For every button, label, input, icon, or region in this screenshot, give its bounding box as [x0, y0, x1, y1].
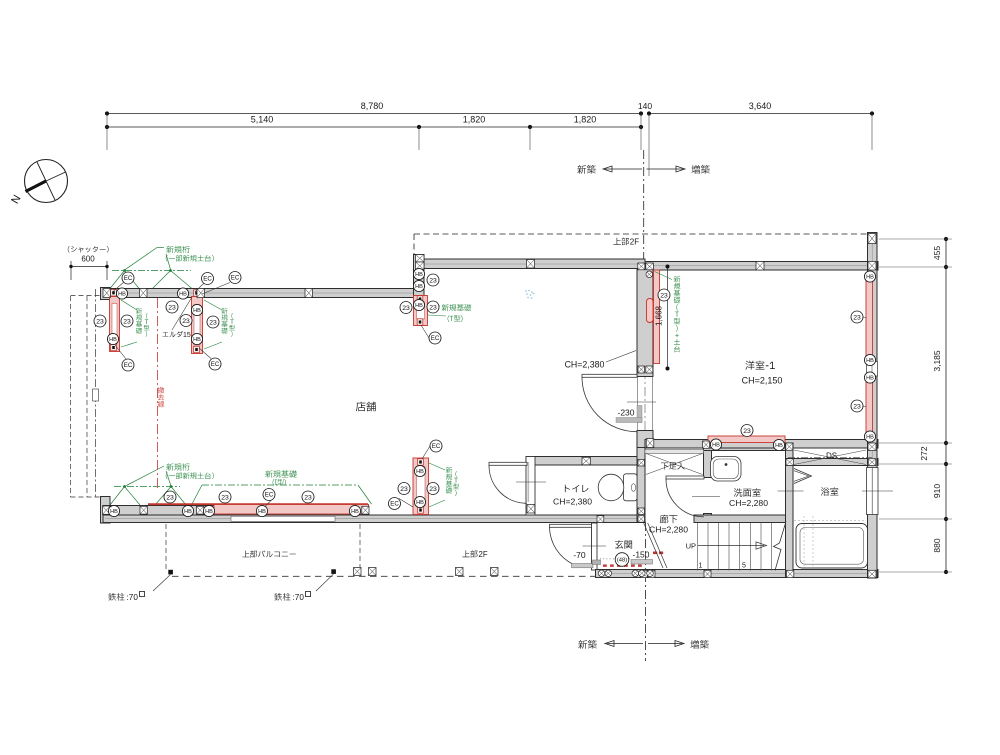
- svg-text:23: 23: [429, 486, 437, 493]
- svg-text:23: 23: [660, 292, 668, 299]
- svg-text:8,780: 8,780: [361, 101, 384, 111]
- svg-text:HB: HB: [416, 469, 424, 475]
- svg-text:HB: HB: [205, 509, 213, 515]
- svg-text:600: 600: [81, 255, 95, 264]
- svg-text:1,668: 1,668: [655, 305, 664, 326]
- svg-text:CH=2,280: CH=2,280: [649, 525, 688, 535]
- svg-text:23: 23: [168, 304, 176, 311]
- svg-text:CH=2,280: CH=2,280: [729, 498, 768, 508]
- svg-text:15: 15: [183, 332, 191, 339]
- svg-text:23: 23: [853, 314, 861, 321]
- svg-text:23: 23: [429, 277, 437, 284]
- svg-text:HB: HB: [184, 509, 192, 515]
- svg-text:23: 23: [402, 305, 410, 312]
- svg-text:HB: HB: [109, 337, 117, 343]
- svg-text:HB: HB: [415, 284, 423, 290]
- svg-text:EC: EC: [265, 492, 274, 499]
- svg-text:23: 23: [400, 486, 408, 493]
- svg-text:910: 910: [932, 484, 942, 498]
- svg-text:23: 23: [304, 494, 312, 501]
- svg-text:1,820: 1,820: [574, 115, 597, 125]
- svg-text:HB: HB: [193, 337, 201, 343]
- svg-text:-230: -230: [617, 408, 634, 418]
- svg-text:CH=2,380: CH=2,380: [565, 360, 605, 370]
- svg-text:-70: -70: [573, 550, 586, 560]
- svg-text:23: 23: [182, 318, 190, 325]
- svg-text:HB: HB: [415, 272, 423, 278]
- svg-text:23: 23: [123, 318, 131, 325]
- svg-text:1,820: 1,820: [463, 115, 486, 125]
- svg-text:EC: EC: [211, 361, 220, 368]
- svg-text:HB: HB: [193, 308, 201, 314]
- svg-text:23: 23: [743, 428, 751, 435]
- svg-text:HB: HB: [866, 358, 874, 364]
- svg-text:EC: EC: [124, 275, 133, 282]
- svg-text:HB: HB: [866, 376, 874, 382]
- svg-text:EC: EC: [231, 275, 240, 282]
- svg-text:2F: 2F: [630, 238, 639, 247]
- svg-text:HB: HB: [351, 509, 359, 515]
- svg-text:HB: HB: [415, 303, 423, 309]
- svg-text:EC: EC: [124, 362, 133, 369]
- svg-text:880: 880: [932, 538, 942, 552]
- svg-text:23: 23: [221, 494, 229, 501]
- svg-text:272: 272: [919, 446, 929, 460]
- svg-text:HB: HB: [712, 443, 720, 449]
- svg-text:140: 140: [638, 101, 652, 111]
- svg-text:HB: HB: [416, 500, 424, 506]
- svg-text:EC: EC: [431, 335, 440, 342]
- svg-text:UP: UP: [686, 542, 696, 551]
- svg-text:(48): (48): [617, 558, 627, 564]
- svg-text:23: 23: [853, 403, 861, 410]
- svg-text:5: 5: [742, 563, 746, 570]
- svg-text:23: 23: [429, 304, 437, 311]
- svg-text:455: 455: [932, 246, 942, 260]
- svg-text::70: :70: [293, 593, 305, 602]
- svg-text:HB: HB: [866, 435, 874, 441]
- svg-text:5,140: 5,140: [251, 115, 274, 125]
- svg-text:DS: DS: [826, 451, 837, 460]
- svg-text:HB: HB: [110, 509, 118, 515]
- svg-text:HB: HB: [258, 509, 266, 515]
- svg-text:-150: -150: [632, 550, 649, 560]
- svg-text::70: :70: [127, 593, 139, 602]
- svg-text:HB: HB: [866, 275, 874, 281]
- svg-text:HB: HB: [118, 292, 126, 298]
- svg-text:EC: EC: [432, 443, 441, 450]
- svg-text:3,640: 3,640: [749, 101, 772, 111]
- svg-text:EC: EC: [390, 501, 399, 508]
- svg-text:3,185: 3,185: [932, 350, 942, 372]
- svg-text:2F: 2F: [479, 550, 488, 559]
- svg-text:HB: HB: [775, 443, 783, 449]
- svg-text:HB: HB: [179, 292, 187, 298]
- svg-text:23: 23: [209, 319, 217, 326]
- svg-text:CH=2,150: CH=2,150: [742, 376, 783, 386]
- svg-text:EC: EC: [203, 276, 212, 283]
- svg-text:23: 23: [166, 494, 174, 501]
- svg-text:1: 1: [699, 563, 703, 570]
- svg-text:23: 23: [96, 318, 104, 325]
- svg-text:CH=2,380: CH=2,380: [553, 497, 592, 507]
